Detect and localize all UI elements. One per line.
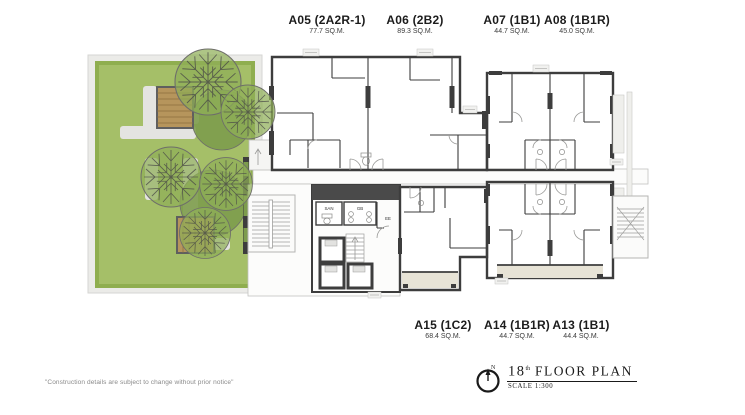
title-block: N 18th FLOOR PLAN SCALE 1:300 bbox=[474, 362, 637, 394]
unit-block-a05-a06 bbox=[269, 57, 487, 170]
unit-block-a14-a13 bbox=[486, 182, 614, 278]
unit-label-a07: A07 (1B1) 44.7 SQ.M. bbox=[483, 13, 540, 35]
floor-plan-drawing: SAN GB EE bbox=[0, 0, 745, 415]
ee-label: EE bbox=[385, 216, 391, 221]
unit-label-a05: A05 (2A2R-1) 77.7 SQ.M. bbox=[288, 13, 365, 35]
unit-label-a08: A08 (1B1R) 45.0 SQ.M. bbox=[544, 13, 610, 35]
entry-bridge bbox=[249, 140, 272, 170]
compass-icon: N bbox=[474, 362, 504, 394]
unit-name: A14 (1B1R) bbox=[484, 318, 550, 332]
plan-title: 18th FLOOR PLAN SCALE 1:300 bbox=[507, 362, 637, 390]
unit-name: A08 (1B1R) bbox=[544, 13, 610, 27]
balcony bbox=[402, 272, 458, 288]
plan-title-text: FLOOR PLAN bbox=[535, 364, 633, 379]
building: SAN GB EE bbox=[243, 49, 648, 298]
unit-area: 45.0 SQ.M. bbox=[544, 28, 610, 35]
unit-area: 68.4 SQ.M. bbox=[414, 333, 471, 340]
stairwell-right bbox=[613, 196, 648, 258]
tree-icon bbox=[141, 147, 201, 207]
wc-fixture bbox=[361, 153, 371, 165]
unit-name: A07 (1B1) bbox=[483, 13, 540, 27]
unit-name: A05 (2A2R-1) bbox=[288, 13, 365, 27]
gb-label: GB bbox=[357, 206, 363, 211]
unit-area: 44.7 SQ.M. bbox=[484, 333, 550, 340]
core-band bbox=[312, 185, 400, 200]
unit-area: 44.7 SQ.M. bbox=[483, 28, 540, 35]
tree-icon bbox=[200, 158, 253, 211]
unit-label-a13: A13 (1B1) 44.4 SQ.M. bbox=[552, 318, 609, 340]
core-stair bbox=[346, 234, 364, 262]
stairwell-left bbox=[248, 195, 295, 252]
floor-suffix: th bbox=[526, 366, 531, 372]
unit-label-a14: A14 (1B1R) 44.7 SQ.M. bbox=[484, 318, 550, 340]
unit-label-a06: A06 (2B2) 89.3 SQ.M. bbox=[386, 13, 443, 35]
floor-number: 18 bbox=[508, 364, 526, 380]
balcony bbox=[497, 265, 603, 278]
unit-name: A13 (1B1) bbox=[552, 318, 609, 332]
tree-icon bbox=[180, 208, 231, 259]
unit-area: 89.3 SQ.M. bbox=[386, 28, 443, 35]
unit-block-a15 bbox=[398, 187, 488, 290]
floor-plan-page: SAN GB EE bbox=[0, 0, 745, 415]
disclaimer-text: "Construction details are subject to cha… bbox=[45, 379, 234, 386]
unit-label-a15: A15 (1C2) 68.4 SQ.M. bbox=[414, 318, 471, 340]
unit-block-a07-a08 bbox=[486, 71, 614, 170]
san-label: SAN bbox=[324, 206, 333, 211]
plan-scale: SCALE 1:300 bbox=[507, 382, 637, 390]
unit-name: A15 (1C2) bbox=[414, 318, 471, 332]
unit-area: 77.7 SQ.M. bbox=[288, 28, 365, 35]
unit-area: 44.4 SQ.M. bbox=[552, 333, 609, 340]
tree-icon bbox=[221, 85, 275, 139]
unit-name: A06 (2B2) bbox=[386, 13, 443, 27]
